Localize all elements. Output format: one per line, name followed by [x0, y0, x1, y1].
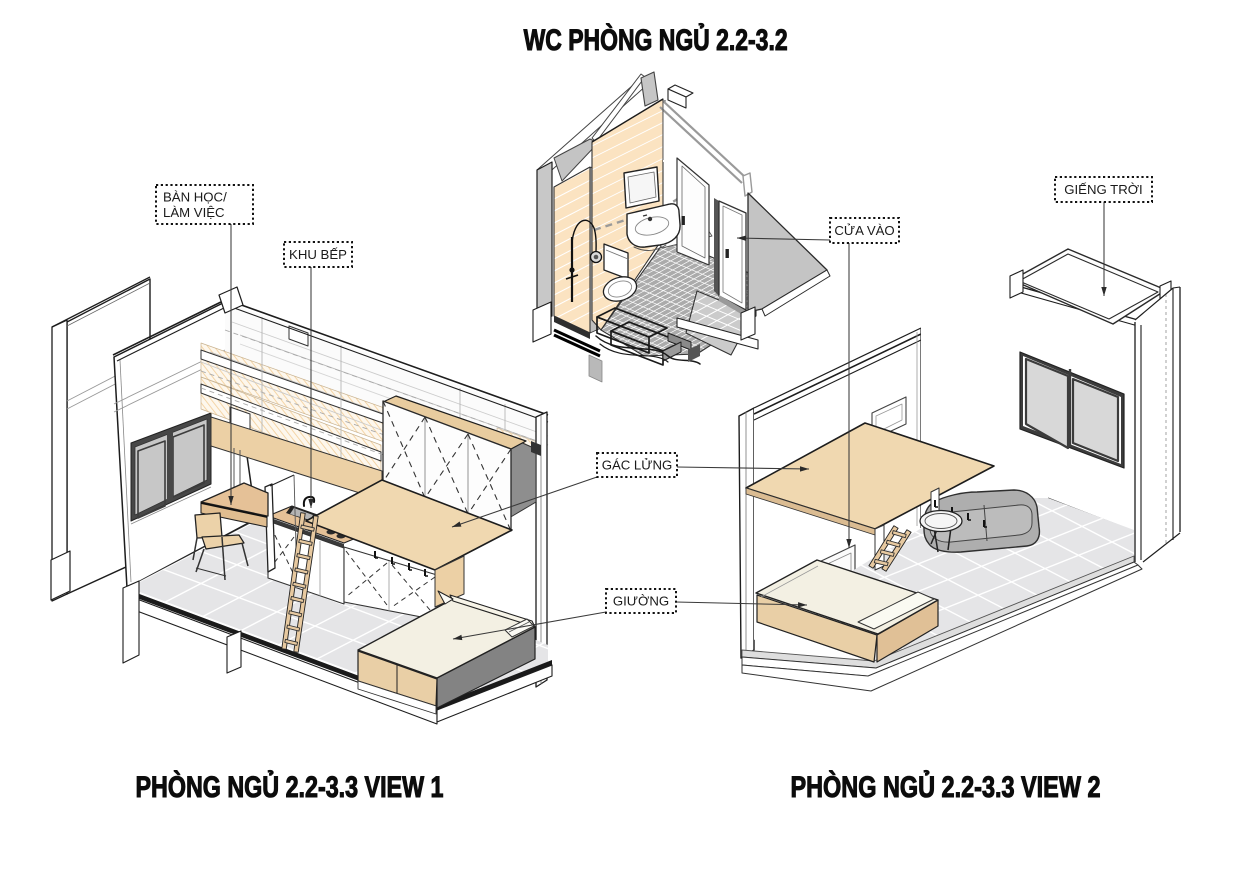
svg-text:WC PHÒNG NGỦ 2.2-3.2: WC PHÒNG NGỦ 2.2-3.2 [524, 23, 788, 57]
svg-text:PHÒNG NGỦ 2.2-3.3 VIEW 1: PHÒNG NGỦ 2.2-3.3 VIEW 1 [136, 770, 444, 804]
svg-text:CỬA VÀO: CỬA VÀO [834, 223, 894, 238]
svg-text:LÀM VIỆC: LÀM VIỆC [163, 205, 225, 220]
svg-text:BÀN HỌC/: BÀN HỌC/ [163, 189, 227, 204]
svg-text:GÁC LỬNG: GÁC LỬNG [602, 458, 673, 473]
svg-text:KHU BẾP: KHU BẾP [289, 247, 347, 262]
svg-text:PHÒNG NGỦ 2.2-3.3 VIEW 2: PHÒNG NGỦ 2.2-3.3 VIEW 2 [791, 770, 1101, 804]
svg-text:GIẾNG TRỜI: GIẾNG TRỜI [1064, 182, 1142, 197]
svg-text:GIƯỜNG: GIƯỜNG [613, 594, 669, 609]
